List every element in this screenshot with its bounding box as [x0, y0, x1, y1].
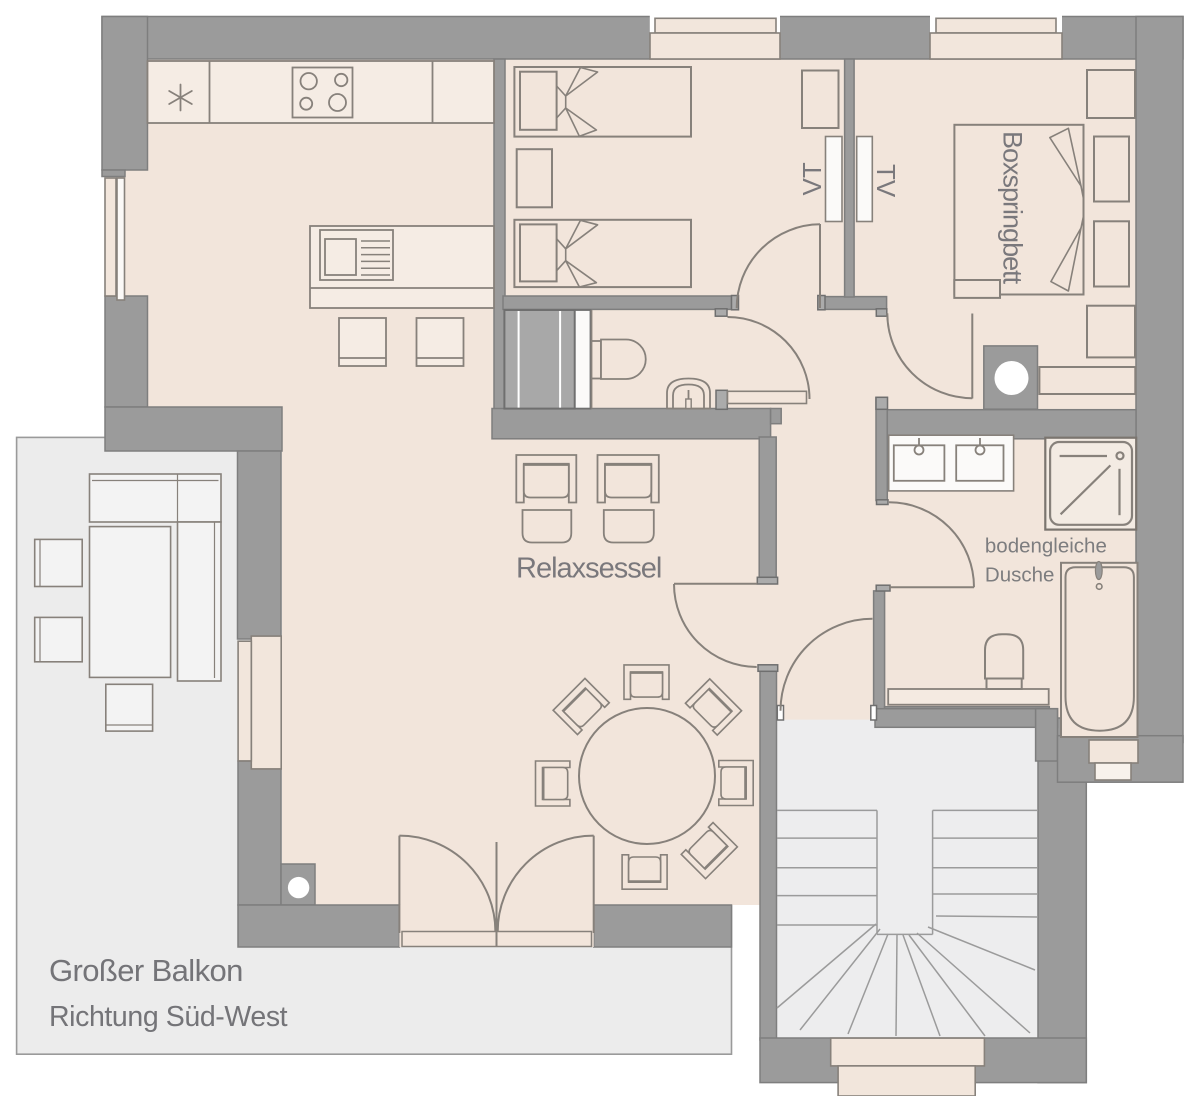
svg-text:Boxspringbett: Boxspringbett: [998, 131, 1028, 285]
svg-text:Richtung Süd-West: Richtung Süd-West: [49, 1001, 288, 1033]
svg-text:bodengleiche: bodengleiche: [985, 535, 1107, 558]
svg-text:Relaxsessel: Relaxsessel: [516, 553, 661, 585]
svg-text:TV: TV: [871, 164, 901, 198]
svg-text:VT: VT: [797, 162, 827, 195]
svg-text:Großer Balkon: Großer Balkon: [49, 953, 243, 988]
svg-text:Dusche: Dusche: [985, 564, 1055, 587]
